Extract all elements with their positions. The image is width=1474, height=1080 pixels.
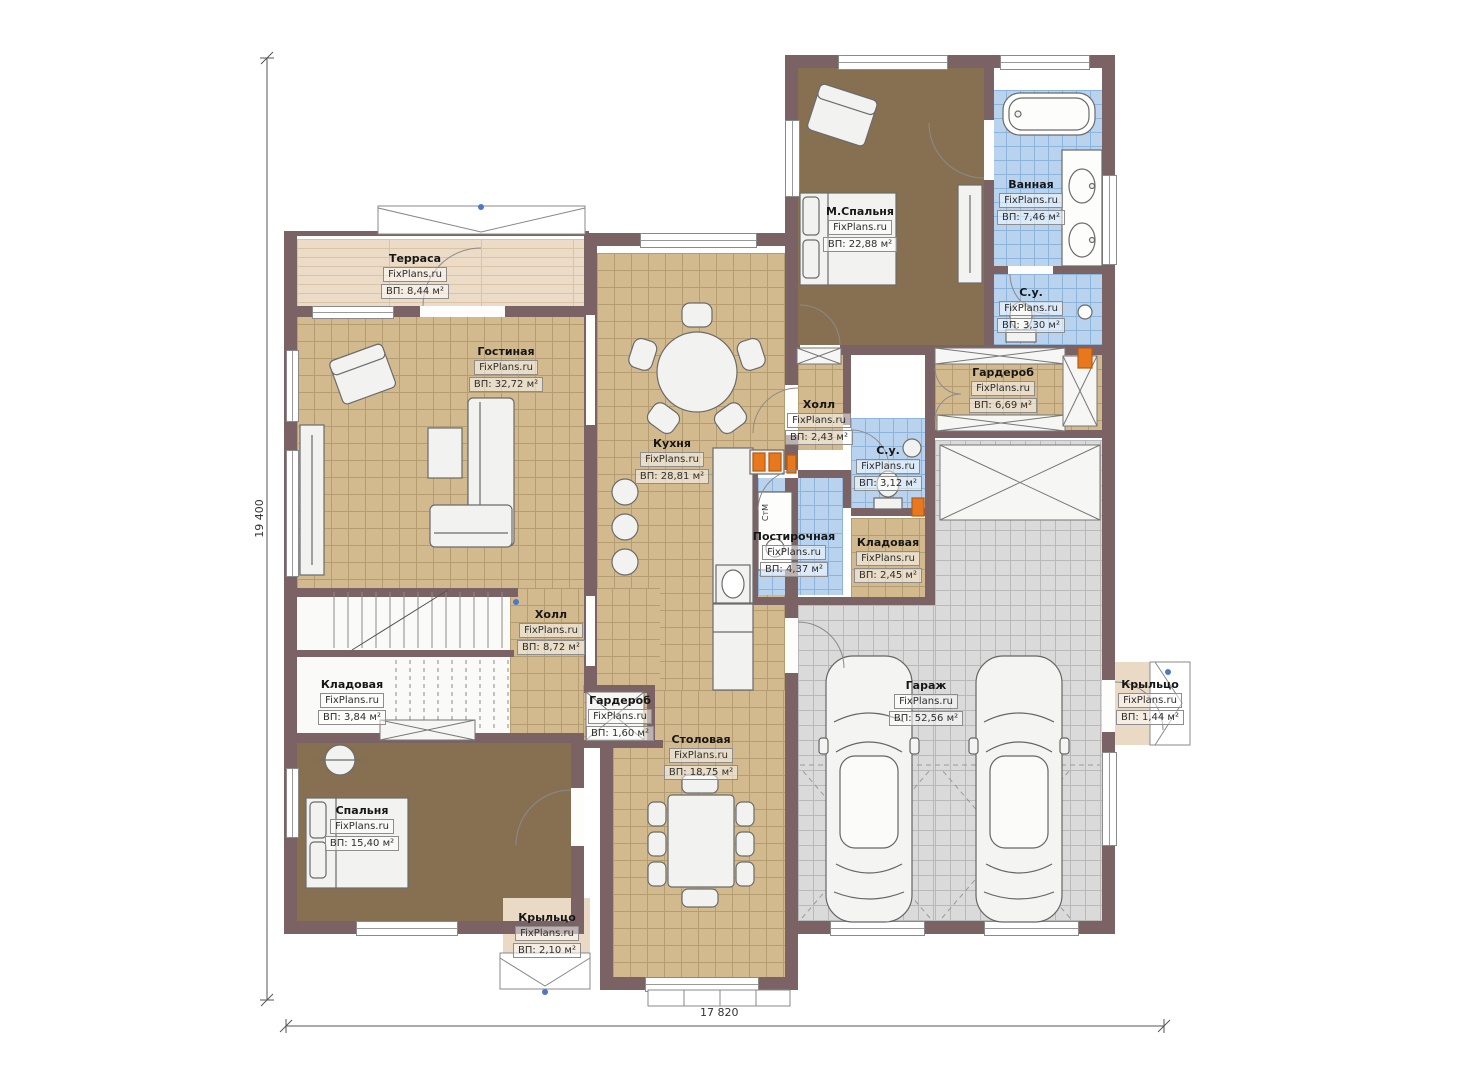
wall-segment: [284, 733, 571, 743]
door-opening: [586, 315, 595, 425]
terrace-steps: [378, 206, 585, 234]
wall-segment: [284, 231, 589, 236]
watermark: FixPlans.ru: [856, 551, 920, 566]
watermark: FixPlans.ru: [971, 381, 1035, 396]
watermark: FixPlans.ru: [1118, 693, 1182, 708]
wall-segment: [750, 597, 935, 605]
window: [1102, 752, 1117, 846]
room-label-wardrobe-right: Гардероб FixPlans.ru ВП: 6,69 м²: [938, 366, 1068, 413]
wall-segment: [935, 430, 1105, 438]
room-label-storage-left: Кладовая FixPlans.ru ВП: 3,84 м²: [287, 678, 417, 725]
window: [838, 55, 948, 70]
room-label-bathroom: Ванная FixPlans.ru ВП: 7,46 м²: [966, 178, 1096, 225]
room-label-hall-main: Холл FixPlans.ru ВП: 8,72 м²: [486, 608, 616, 655]
door-opening: [984, 120, 994, 180]
watermark: FixPlans.ru: [828, 220, 892, 235]
wall-segment: [284, 650, 514, 657]
window: [645, 977, 759, 992]
porch-bottom-steps: [500, 953, 590, 989]
room-label-dining: Столовая FixPlans.ru ВП: 18,75 м²: [636, 733, 766, 780]
room-label-garage: Гараж FixPlans.ru ВП: 52,56 м²: [861, 679, 991, 726]
room-label-master-bedroom: М.Спальня FixPlans.ru ВП: 22,88 м²: [795, 205, 925, 252]
wall-segment: [584, 685, 655, 693]
window: [312, 306, 394, 319]
room-label-wc-mid: С.у. FixPlans.ru ВП: 3,12 м²: [823, 444, 953, 491]
door-opening: [1008, 266, 1053, 274]
window: [640, 233, 757, 248]
door-opening: [571, 788, 584, 846]
door-opening: [420, 306, 505, 317]
watermark: FixPlans.ru: [669, 748, 733, 763]
window: [785, 120, 800, 197]
watermark: FixPlans.ru: [383, 267, 447, 282]
door-opening: [800, 345, 840, 355]
dimension-vertical: 19 400: [253, 499, 266, 538]
wall-segment: [851, 508, 925, 516]
window: [356, 921, 458, 936]
room-label-porch-right: Крыльцо FixPlans.ru ВП: 1,44 м²: [1085, 678, 1215, 725]
room-label-living: Гостиная FixPlans.ru ВП: 32,72 м²: [441, 345, 571, 392]
watermark: FixPlans.ru: [640, 452, 704, 467]
room-label-kitchen: Кухня FixPlans.ru ВП: 28,81 м²: [607, 437, 737, 484]
wall-segment: [284, 588, 518, 597]
watermark: FixPlans.ru: [787, 413, 851, 428]
watermark: FixPlans.ru: [588, 709, 652, 724]
garage-floor-left: [798, 605, 935, 921]
watermark: FixPlans.ru: [330, 819, 394, 834]
watermark: FixPlans.ru: [894, 694, 958, 709]
washing-machine-label: СтМ: [761, 504, 770, 521]
room-label-bedroom: Спальня FixPlans.ru ВП: 15,40 м²: [297, 804, 427, 851]
watermark: FixPlans.ru: [762, 545, 826, 560]
dining-bay-steps: [648, 990, 790, 1006]
window: [1000, 55, 1090, 70]
window: [286, 350, 299, 422]
room-label-storage-mid: Кладовая FixPlans.ru ВП: 2,45 м²: [823, 536, 953, 583]
room-label-terrace: Терраса FixPlans.ru ВП: 8,44 м²: [350, 252, 480, 299]
watermark: FixPlans.ru: [856, 459, 920, 474]
window: [286, 450, 299, 577]
watermark: FixPlans.ru: [999, 193, 1063, 208]
dimension-horizontal: 17 820: [700, 1006, 739, 1019]
door-opening: [785, 618, 798, 673]
watermark: FixPlans.ru: [474, 360, 538, 375]
room-label-wc-top: С.у. FixPlans.ru ВП: 3,30 м²: [966, 286, 1096, 333]
watermark: FixPlans.ru: [515, 926, 579, 941]
door-opening: [758, 470, 798, 478]
garage-door: [984, 921, 1079, 936]
watermark: FixPlans.ru: [999, 301, 1063, 316]
entry-marker: [478, 204, 484, 210]
window: [1102, 175, 1117, 265]
watermark: FixPlans.ru: [320, 693, 384, 708]
garage-door: [830, 921, 925, 936]
room-label-porch-bottom: Крыльцо FixPlans.ru ВП: 2,10 м²: [482, 911, 612, 958]
room-label-hall-small: Холл FixPlans.ru ВП: 2,43 м²: [754, 398, 884, 445]
floor-plan: Терраса FixPlans.ru ВП: 8,44 м² Гостиная…: [0, 0, 1474, 1080]
watermark: FixPlans.ru: [519, 623, 583, 638]
